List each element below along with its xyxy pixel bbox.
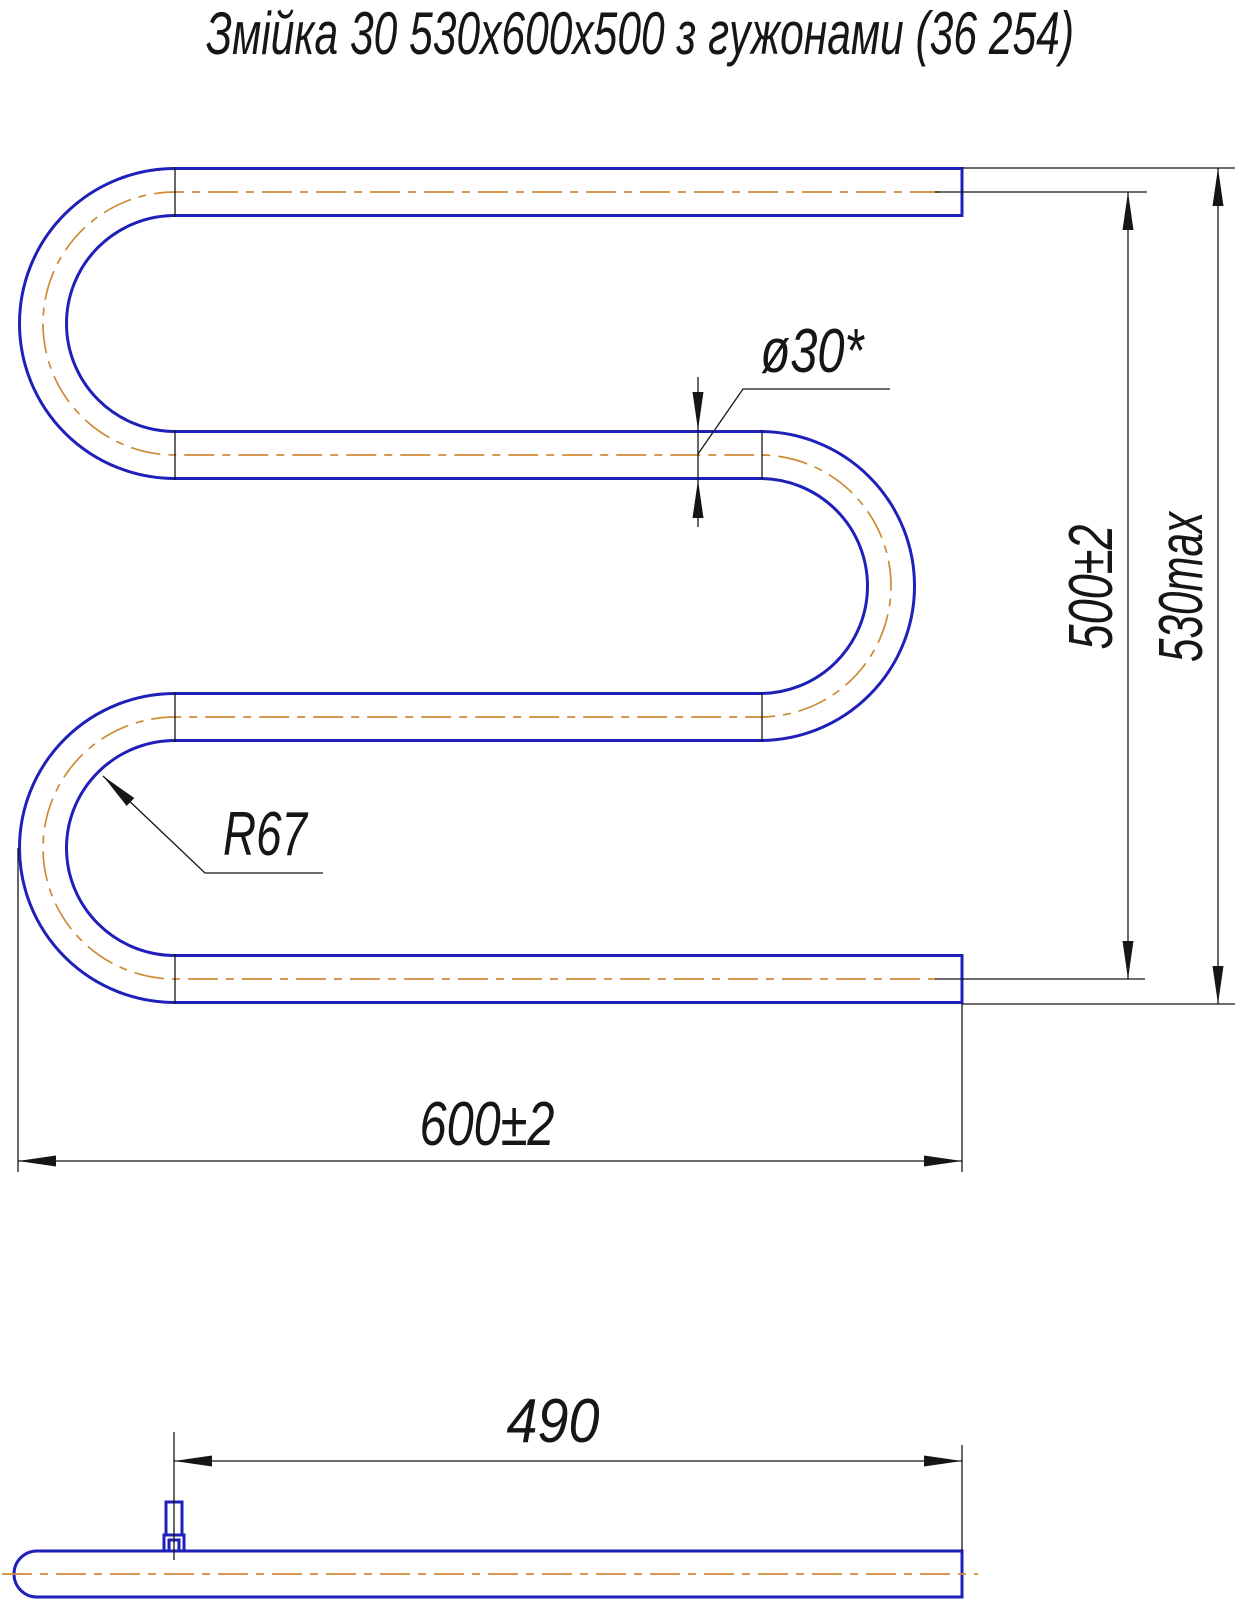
serpentine-front-view [43,167,962,1004]
bottom-side-view: 490 [2,1387,978,1597]
arrow-up-icon [1213,168,1224,206]
arrow-right-icon [924,1156,962,1167]
arrow-left-icon [174,1456,212,1467]
dimension-stud-to-end: 490 [174,1387,962,1560]
pipe-centerline [43,192,940,979]
arrow-down-icon [1213,966,1224,1004]
overall-width-label: 600±2 [420,1090,555,1159]
arrow-left-icon [18,1156,56,1167]
dimension-overall-width: 600±2 [18,848,962,1172]
max-height-label: 530max [1147,511,1216,662]
technical-drawing-canvas: ø30* R67 500±2 530max [0,0,1235,1601]
arrow-right-icon [924,1456,962,1467]
dimension-bend-radius: R67 [103,776,323,873]
arrow-upleft-icon [103,776,134,806]
diameter-label: ø30* [761,317,865,386]
center-height-label: 500±2 [1057,525,1126,650]
bend-radius-label: R67 [223,800,309,869]
arrow-up-icon [693,480,704,518]
pipe-inner-fill [43,192,962,979]
tangent-ticks [175,167,762,1004]
arrow-down-icon [693,392,704,430]
arrow-up-icon [1123,192,1134,230]
arrow-down-icon [1123,941,1134,979]
stud-to-end-label: 490 [507,1387,600,1456]
pipe-outline [43,192,962,979]
dimension-center-height: 500±2 [935,192,1147,979]
drawing-title: Змійка 30 530х600х500 з гужонами (36 254… [206,0,1074,67]
drawing-sheet: ø30* R67 500±2 530max [0,0,1235,1601]
